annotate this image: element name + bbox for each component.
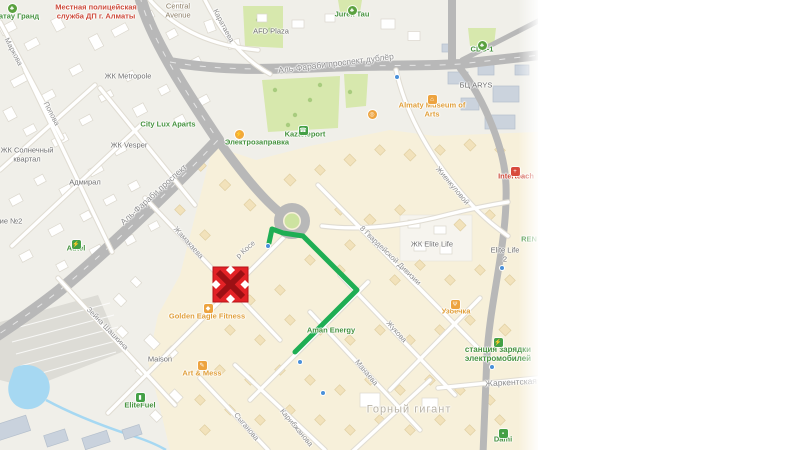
map-region: Местная полицейская служба ДП г. Алматыа… [0, 0, 538, 450]
slide: Местная полицейская служба ДП г. Алматыа… [0, 0, 800, 450]
residential-area [148, 130, 538, 450]
blocked-section-marker [211, 265, 249, 303]
map-edge-fade [518, 0, 540, 450]
map-graphics [0, 0, 538, 450]
legend-panel: Перекрываемый участок Объездные пути [538, 0, 800, 450]
